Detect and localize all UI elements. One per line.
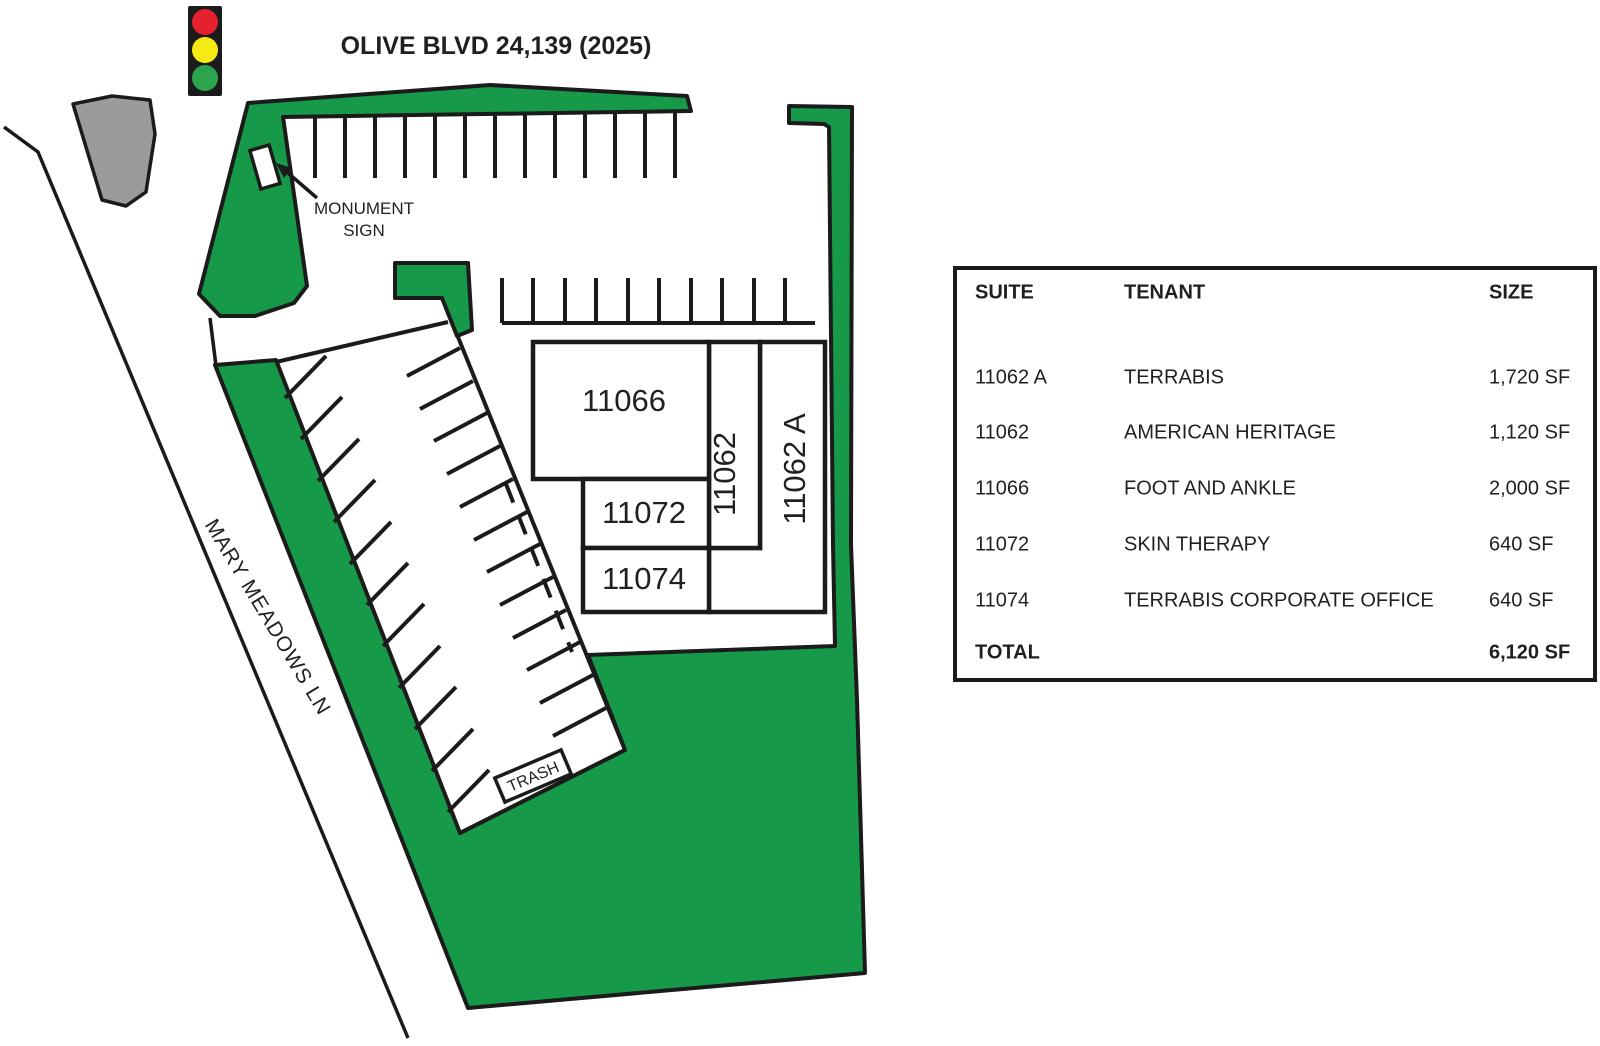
row-suite: 11072 <box>975 534 1029 557</box>
suite-11072-label: 11072 <box>602 495 686 530</box>
road-right-edge-segment <box>210 318 216 366</box>
parking-top-edge <box>276 322 448 362</box>
suite-11062-label: 11062 <box>707 432 742 516</box>
total-size: 6,120 SF <box>1489 642 1570 665</box>
header-tenant: TENANT <box>1124 282 1205 305</box>
header-suite: SUITE <box>975 282 1034 305</box>
row-size: 2,000 SF <box>1489 478 1570 501</box>
parking-row-top <box>315 112 675 178</box>
header-size: SIZE <box>1489 282 1533 305</box>
suite-11074-label: 11074 <box>602 561 686 596</box>
site-plan-page: MONUMENT SIGN 11066 11072 11074 11062 11… <box>0 0 1600 1046</box>
parking-dashed-aisle-line <box>506 484 572 652</box>
total-label: TOTAL <box>975 642 1040 665</box>
row-suite: 11062 <box>975 422 1029 445</box>
row-size: 1,720 SF <box>1489 367 1570 390</box>
row-size: 640 SF <box>1489 590 1553 613</box>
row-tenant: FOOT AND ANKLE <box>1124 478 1296 501</box>
row-tenant: AMERICAN HERITAGE <box>1124 422 1336 445</box>
suite-11062a-label: 11062 A <box>777 413 812 525</box>
tenant-table: SUITE TENANT SIZE 11062 A TERRABIS 1,720… <box>953 266 1597 682</box>
row-size: 1,120 SF <box>1489 422 1570 445</box>
row-size: 640 SF <box>1489 534 1553 557</box>
row-suite: 11062 A <box>975 367 1047 390</box>
parking-row-middle <box>502 278 815 323</box>
traffic-light-icon <box>188 6 222 96</box>
row-suite: 11066 <box>975 478 1029 501</box>
row-tenant: TERRABIS <box>1124 367 1224 390</box>
suite-11066-label: 11066 <box>582 383 666 418</box>
monument-sign-label-line2: SIGN <box>343 221 385 240</box>
row-suite: 11074 <box>975 590 1029 613</box>
gray-parcel <box>73 96 155 206</box>
row-tenant: TERRABIS CORPORATE OFFICE <box>1124 590 1434 613</box>
row-tenant: SKIN THERAPY <box>1124 534 1270 557</box>
building-block: 11066 11072 11074 11062 11062 A <box>533 342 825 612</box>
page-title: OLIVE BLVD 24,139 (2025) <box>341 32 652 60</box>
monument-sign-label-line1: MONUMENT <box>314 199 414 218</box>
